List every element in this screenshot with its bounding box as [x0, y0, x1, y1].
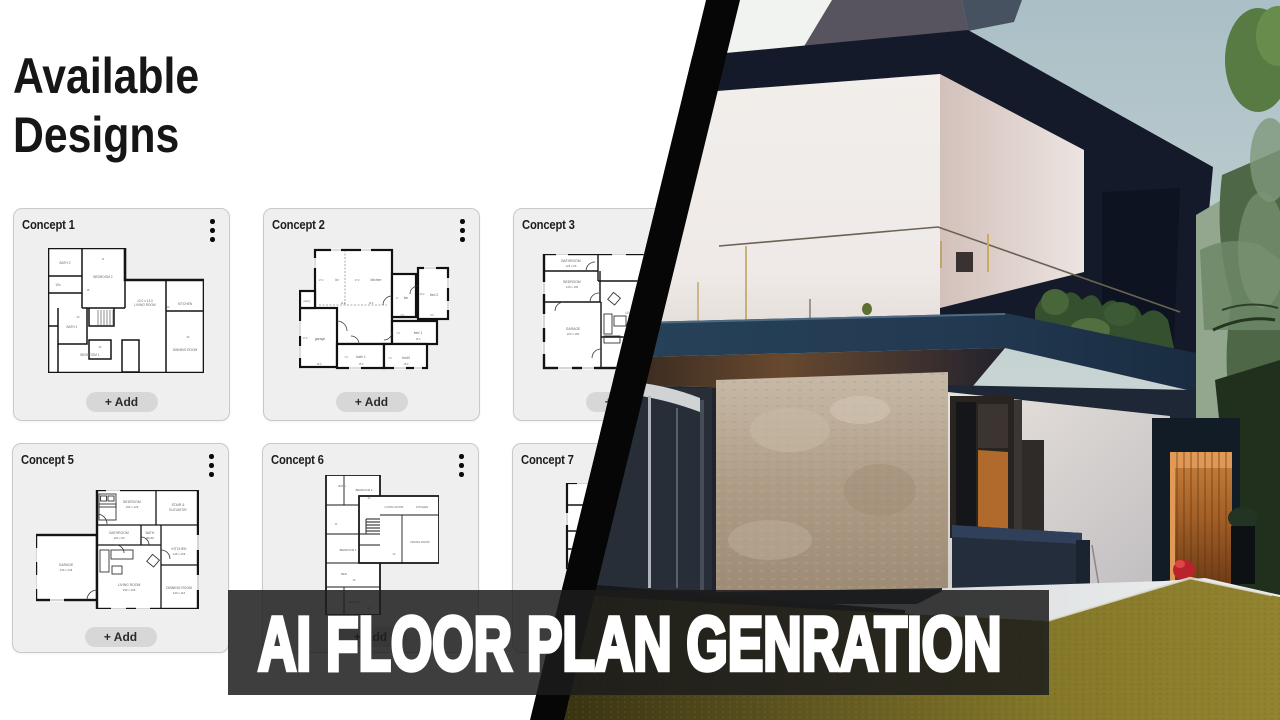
svg-text:AI FLOOR PLAN GENRATION: AI FLOOR PLAN GENRATION	[258, 602, 1002, 687]
